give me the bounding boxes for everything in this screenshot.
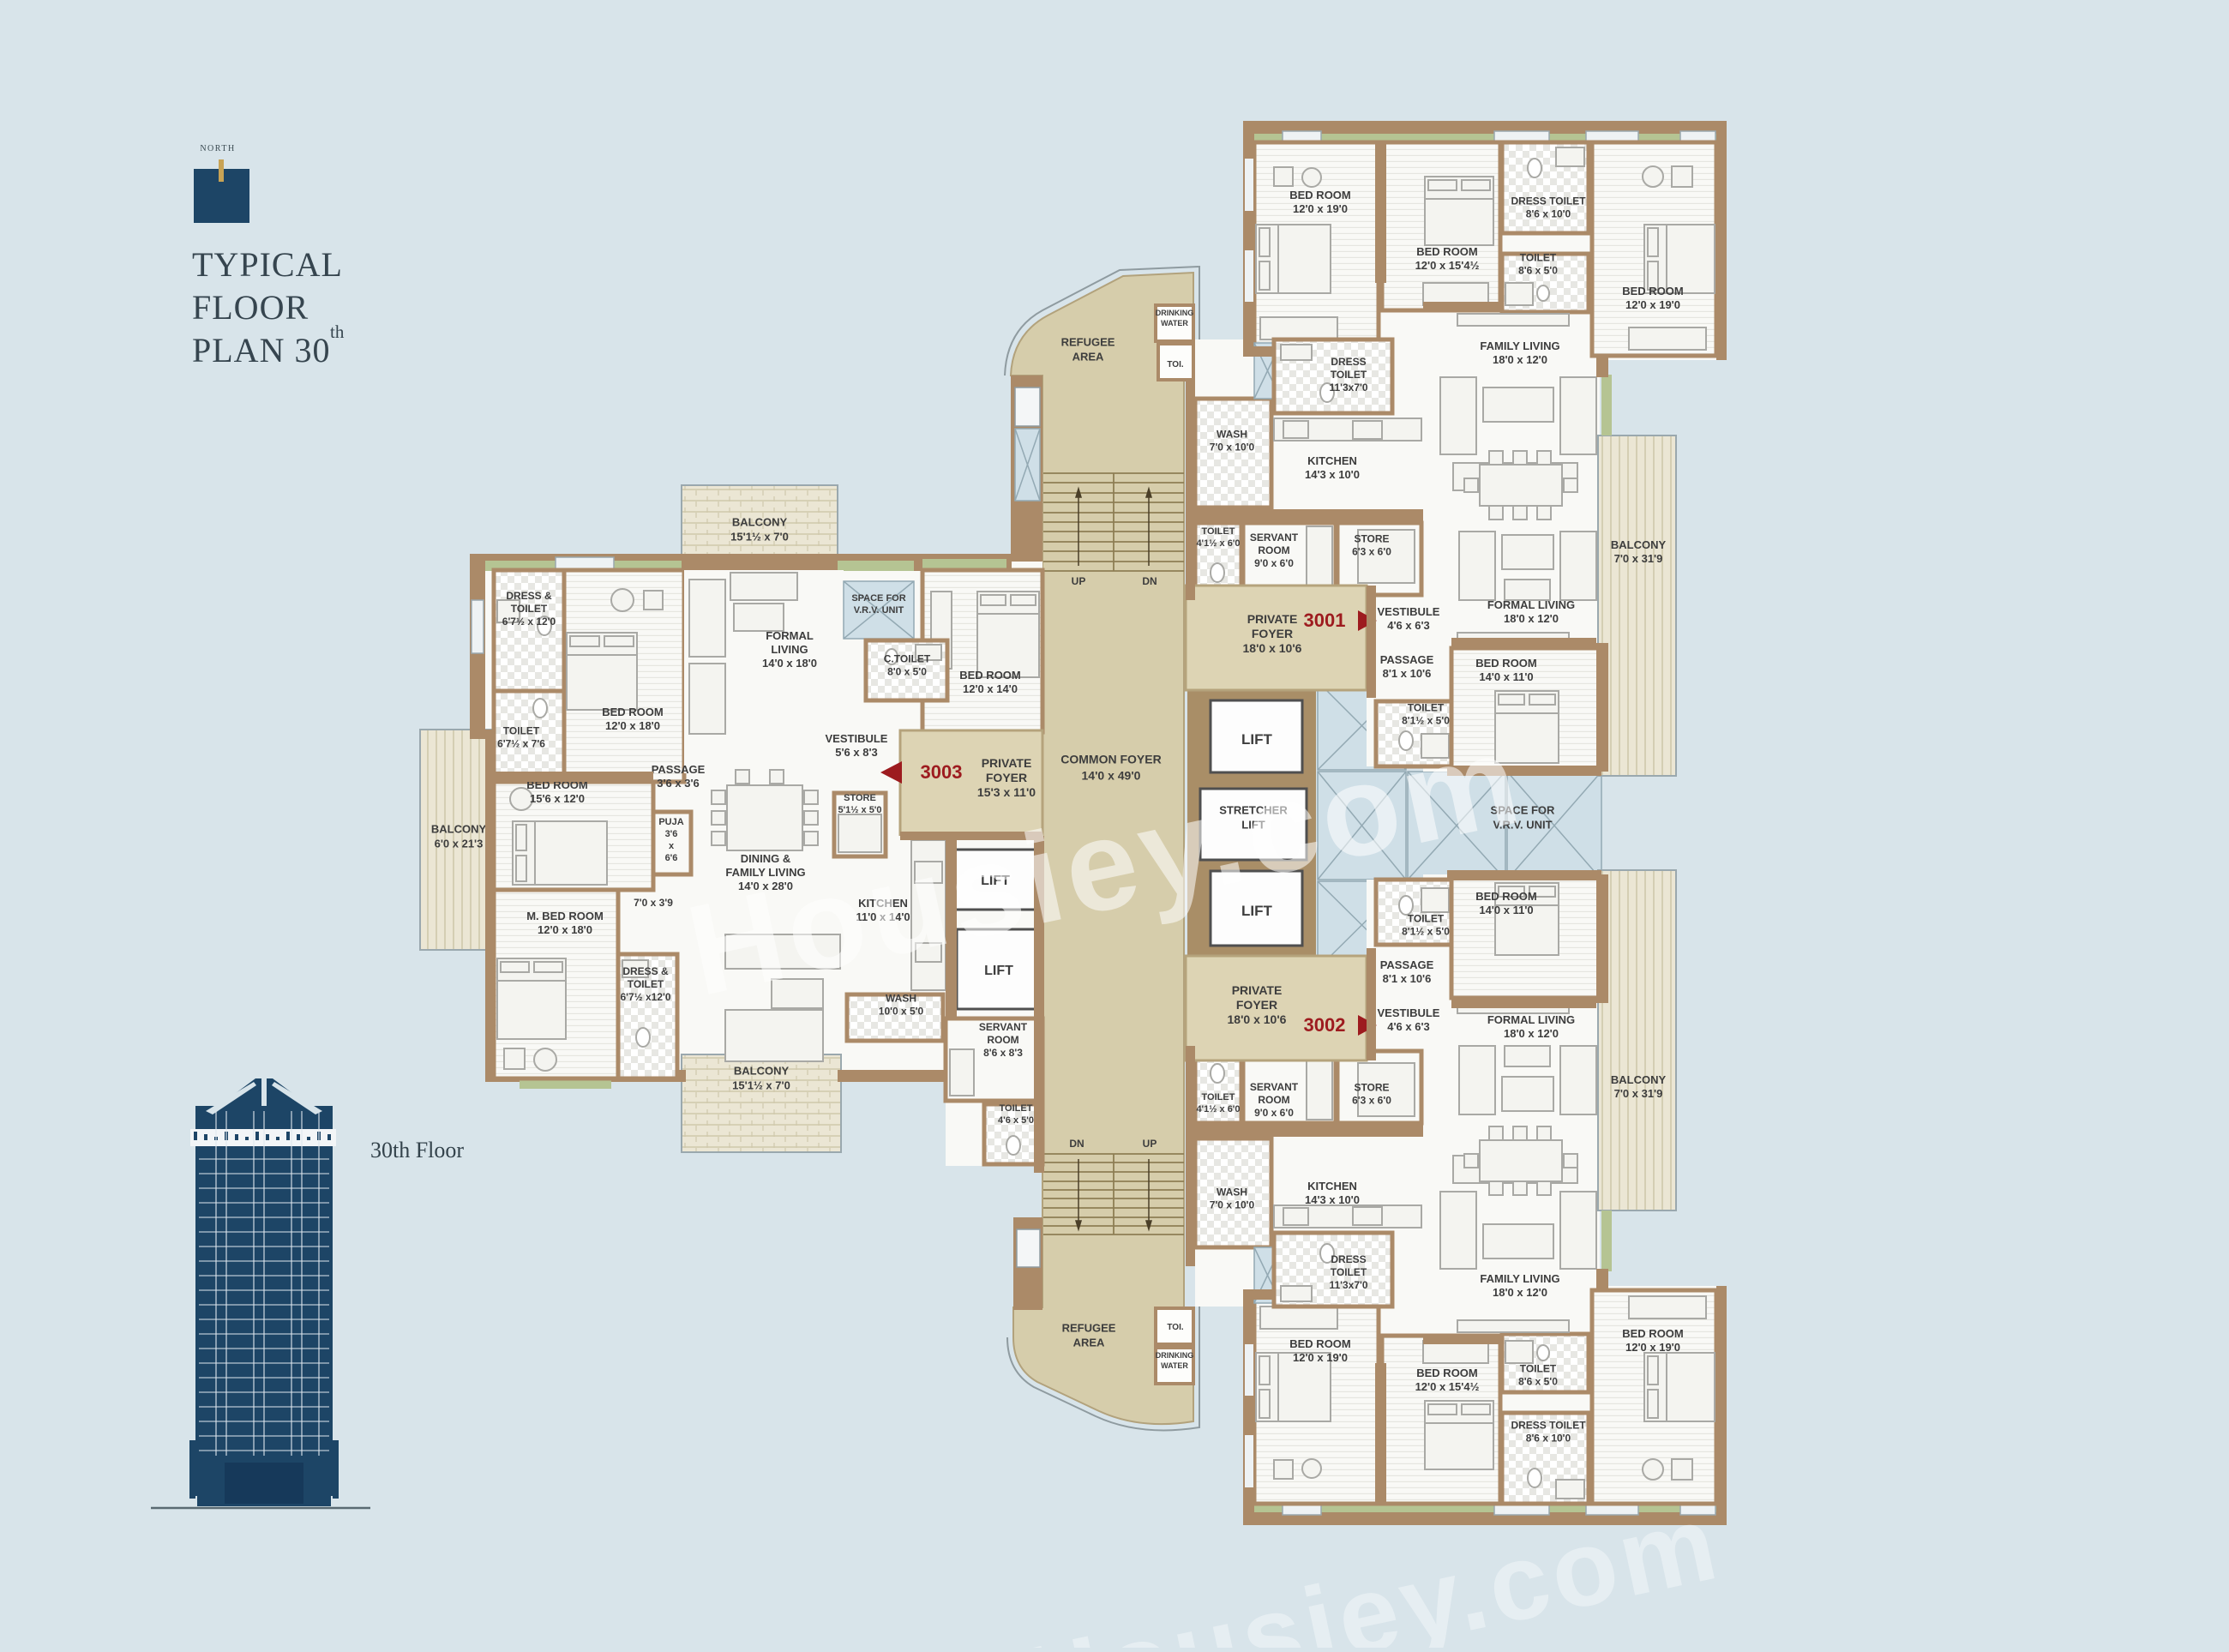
svg-text:STORE6'3 x 6'0: STORE6'3 x 6'0 [1352,1082,1391,1107]
svg-text:7'0 x 3'9: 7'0 x 3'9 [634,897,673,909]
svg-text:UP: UP [1072,575,1086,587]
svg-text:C.TOILET8'0 x 5'0: C.TOILET8'0 x 5'0 [884,653,931,678]
svg-text:TOILET8'1½ x 5'0: TOILET8'1½ x 5'0 [1402,913,1450,938]
svg-text:TOILET6'7½ x 7'6: TOILET6'7½ x 7'6 [497,725,545,750]
svg-text:KITCHEN14'3 x 10'0: KITCHEN14'3 x 10'0 [1305,1180,1360,1206]
svg-text:3002: 3002 [1304,1014,1346,1036]
svg-text:TOI.: TOI. [1167,1323,1183,1332]
svg-text:PASSAGE3'6 x 3'6: PASSAGE3'6 x 3'6 [652,763,706,790]
svg-text:UP: UP [1143,1138,1157,1150]
svg-text:BED ROOM12'0 x 14'0: BED ROOM12'0 x 14'0 [959,669,1021,695]
svg-text:DRESS &TOILET6'7½ x12'0: DRESS &TOILET6'7½ x12'0 [620,965,670,1003]
svg-text:30th Floor: 30th Floor [370,1138,464,1162]
svg-text:BED ROOM12'0 x 15'4½: BED ROOM12'0 x 15'4½ [1415,1367,1480,1393]
svg-text:DN: DN [1069,1138,1084,1150]
svg-text:BED ROOM12'0 x 19'0: BED ROOM12'0 x 19'0 [1622,1327,1684,1354]
svg-text:BED ROOM12'0 x 18'0: BED ROOM12'0 x 18'0 [602,706,664,732]
svg-text:BALCONY7'0 x 31'9: BALCONY7'0 x 31'9 [1611,538,1667,565]
svg-text:STORE6'3 x 6'0: STORE6'3 x 6'0 [1352,533,1391,558]
svg-text:3001: 3001 [1304,610,1346,631]
svg-text:th: th [330,321,345,342]
svg-text:BED ROOM12'0 x 19'0: BED ROOM12'0 x 19'0 [1289,189,1351,215]
svg-text:BED ROOM15'6 x 12'0: BED ROOM15'6 x 12'0 [526,778,588,805]
svg-text:DN: DN [1142,575,1157,587]
svg-text:BED ROOM12'0 x 19'0: BED ROOM12'0 x 19'0 [1622,285,1684,311]
svg-text:BED ROOM12'0 x 15'4½: BED ROOM12'0 x 15'4½ [1415,245,1480,272]
svg-text:BALCONY7'0 x 31'9: BALCONY7'0 x 31'9 [1611,1073,1667,1100]
svg-text:3003: 3003 [921,761,963,783]
svg-text:TOI.: TOI. [1167,360,1183,369]
svg-text:BED ROOM12'0 x 19'0: BED ROOM12'0 x 19'0 [1289,1337,1351,1364]
svg-text:NORTH: NORTH [200,144,235,153]
svg-text:TOILET8'6 x 5'0: TOILET8'6 x 5'0 [1518,252,1558,277]
svg-text:KITCHEN14'3 x 10'0: KITCHEN14'3 x 10'0 [1305,454,1360,481]
svg-text:LIFT: LIFT [1241,731,1272,748]
svg-text:LIFT: LIFT [984,964,1013,978]
svg-text:TOILET8'6 x 5'0: TOILET8'6 x 5'0 [1518,1363,1558,1388]
svg-text:PRIVATEFOYER15'3 x 11'0: PRIVATEFOYER15'3 x 11'0 [977,756,1036,799]
svg-text:PASSAGE8'1 x 10'6: PASSAGE8'1 x 10'6 [1380,653,1434,680]
svg-text:BED ROOM14'0 x 11'0: BED ROOM14'0 x 11'0 [1475,890,1537,916]
svg-text:PASSAGE8'1 x 10'6: PASSAGE8'1 x 10'6 [1380,958,1434,985]
svg-text:DRESSTOILET11'3x7'0: DRESSTOILET11'3x7'0 [1329,1253,1367,1291]
svg-text:DRESSTOILET11'3x7'0: DRESSTOILET11'3x7'0 [1329,356,1367,393]
svg-text:M. BED ROOM12'0 x 18'0: M. BED ROOM12'0 x 18'0 [526,910,604,936]
svg-text:BED ROOM14'0 x 11'0: BED ROOM14'0 x 11'0 [1475,657,1537,683]
